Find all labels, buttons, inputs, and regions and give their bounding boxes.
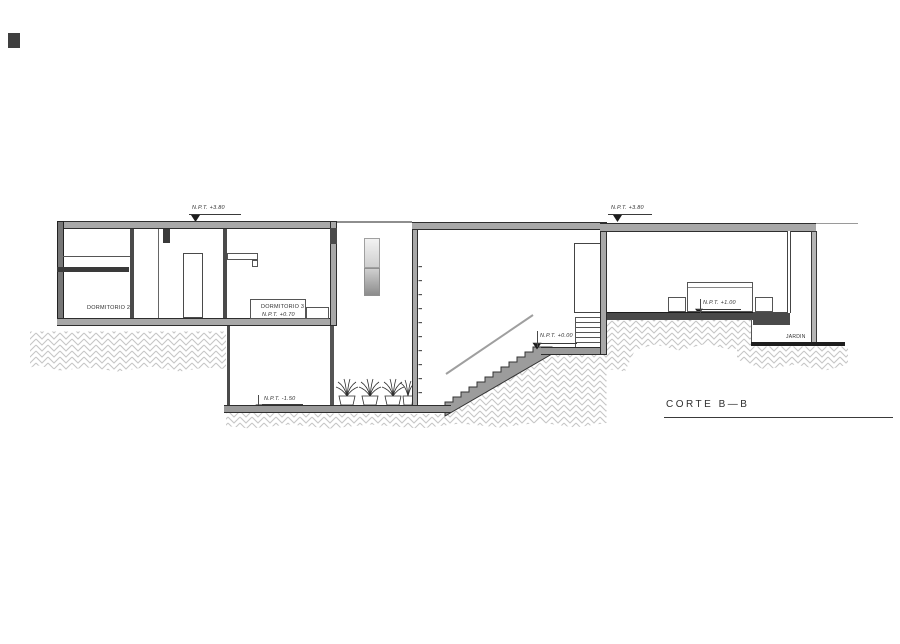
inner-stair-line	[575, 337, 602, 338]
basement-left-wall	[227, 326, 230, 405]
dorm2-counter	[57, 267, 129, 272]
hanging-fixture-top	[364, 238, 380, 268]
door-leaf	[183, 253, 204, 318]
right-roof-slab	[600, 223, 816, 232]
section-drawing-canvas: N.P.T. +3.80 N.P.T. +3.80 DORMITORIO 2 D…	[0, 0, 900, 644]
leader-line	[535, 343, 577, 344]
hall-door	[574, 243, 602, 314]
courtyard-parapet-line	[337, 221, 412, 222]
level-label-dorm3: N.P.T. +0.70	[262, 313, 295, 319]
hall-roof-slab	[412, 222, 607, 230]
leader-tick	[258, 395, 259, 405]
entry-landing-slab	[541, 347, 607, 355]
leader-line	[697, 309, 741, 310]
hall-bedroom-shared-wall	[600, 223, 607, 355]
hanging-fixture-bottom	[364, 268, 380, 296]
inner-stair-line	[575, 317, 602, 318]
leader-tick	[700, 299, 701, 313]
planter-plants-icon	[336, 379, 414, 405]
courtyard-wall	[412, 222, 419, 412]
bed-headboard-line	[688, 287, 752, 288]
room-label-dormitorio3: DORMITORIO 3	[261, 305, 304, 311]
left-roof-slab	[57, 221, 337, 229]
level-label-bedroom: N.P.T. +1.00	[703, 301, 736, 307]
basement-right-wall	[330, 326, 334, 405]
room-label-dormitorio2: DORMITORIO 2	[87, 306, 130, 312]
level-label-roof-left: N.P.T. +3.80	[192, 206, 225, 212]
section-title-underline	[664, 417, 893, 419]
partition-wall-2	[223, 229, 227, 318]
inner-stair-line	[575, 332, 602, 333]
inner-stair-line	[575, 327, 602, 328]
inner-stair-line	[575, 322, 602, 323]
sheet-corner-mark	[8, 33, 20, 48]
basement-floor-slab	[224, 405, 451, 413]
courtyard-wall-ties	[419, 266, 423, 393]
left-building-right-wall-beam	[330, 228, 337, 244]
dorm3-shelf-bracket	[252, 260, 258, 267]
level-label-basement: N.P.T. -1.50	[264, 397, 295, 403]
garden-ground-line	[751, 342, 845, 347]
bedroom-floor-step	[753, 312, 790, 325]
section-title: CORTE B—B	[666, 400, 749, 410]
leader-line	[189, 214, 241, 215]
closet-panel-line	[158, 229, 159, 318]
leader-line	[262, 404, 303, 405]
partition-wall-1	[130, 229, 134, 318]
dorm2-shelf-line	[63, 256, 130, 257]
garden-edge-line	[751, 319, 752, 342]
nightstand-right	[755, 297, 773, 312]
room-label-jardin: JARDIN	[786, 335, 806, 340]
leader-line	[608, 214, 652, 215]
left-exterior-wall	[57, 221, 64, 326]
right-exterior-wall	[811, 231, 817, 343]
leader-tick	[537, 331, 538, 347]
inner-stair-line	[575, 342, 602, 343]
level-label-roof-right: N.P.T. +3.80	[611, 206, 644, 212]
door-lintel	[163, 229, 170, 243]
dorm3-side-table	[306, 307, 329, 319]
left-floor-slab	[57, 318, 337, 326]
level-label-entry: N.P.T. +0.00	[540, 334, 573, 340]
dorm3-shelf	[227, 253, 258, 260]
nightstand-left	[668, 297, 686, 312]
right-roof-thin-line	[816, 223, 858, 224]
bedroom-right-wall	[787, 231, 791, 313]
